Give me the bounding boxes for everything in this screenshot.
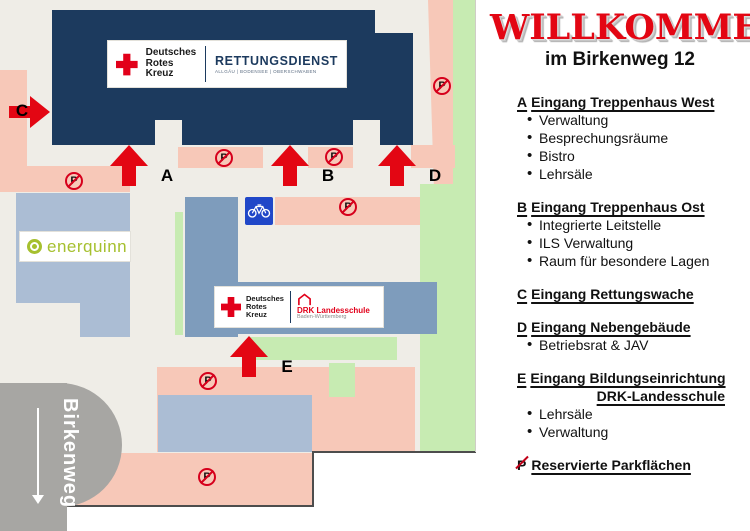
street-direction-arrow bbox=[37, 408, 39, 496]
lawn-strip-left-of-school bbox=[175, 212, 183, 335]
street-birkenweg bbox=[0, 383, 67, 531]
no-parking-sign: P bbox=[199, 372, 217, 390]
page-subtitle: im Birkenweg 12 bbox=[490, 48, 750, 72]
map-border-bottom-left bbox=[66, 505, 314, 507]
entrance-arrow-b: B bbox=[271, 145, 309, 186]
building-enerquinn-annex bbox=[80, 303, 130, 337]
legend-section-parking: PReservierte Parkflächen bbox=[517, 456, 729, 474]
legend-section-e: EEingang Bildungseinrichtung DRK-Landess… bbox=[517, 369, 729, 441]
building-main-right-wing bbox=[375, 33, 413, 120]
bicycle-sign bbox=[245, 197, 273, 225]
up-arrow-icon bbox=[110, 145, 148, 186]
no-parking-sign: P bbox=[198, 468, 216, 486]
no-parking-sign: P bbox=[215, 149, 233, 167]
legend-item: Lehrsäle bbox=[517, 165, 729, 183]
lawn-small-bottom bbox=[329, 363, 355, 397]
rettungsdienst-title: RETTUNGSDIENST bbox=[215, 54, 338, 68]
up-arrow-icon bbox=[271, 145, 309, 186]
building-main-base-mid bbox=[182, 120, 353, 145]
legend-item: Integrierte Leitstelle bbox=[517, 216, 729, 234]
drk-wordmark: Deutsches Rotes Kreuz bbox=[146, 48, 197, 80]
up-arrow-icon bbox=[230, 336, 268, 377]
site-map: enerquinn Deutsches Rotes Kreuz DRK Land… bbox=[0, 0, 478, 531]
street-name-label: Birkenweg bbox=[58, 398, 81, 530]
legend-item: Lehrsäle bbox=[517, 405, 729, 423]
house-icon bbox=[297, 293, 312, 306]
landesschule-mark: DRK Landesschule Baden-Württemberg bbox=[297, 293, 370, 321]
legend-panel: WILLKOMMEN im Birkenweg 12 AEingang Trep… bbox=[490, 0, 750, 531]
red-cross-icon bbox=[221, 297, 241, 317]
map-border-right bbox=[475, 0, 476, 452]
parking-strip-d-road bbox=[411, 145, 455, 168]
logo-divider bbox=[290, 291, 291, 323]
no-parking-sign: P bbox=[325, 148, 343, 166]
map-border-bottom-right bbox=[312, 451, 476, 453]
legend-section-d: DEingang Nebengebäude Betriebsrat & JAV bbox=[517, 318, 729, 354]
legend-sections: AEingang Treppenhaus West Verwaltung Bes… bbox=[517, 93, 729, 474]
legend-item: Besprechungsräume bbox=[517, 129, 729, 147]
rettungsdienst-mark: RETTUNGSDIENST ALLGÄU | BODENSEE | OBERS… bbox=[215, 54, 338, 74]
lawn-right-top bbox=[453, 0, 476, 184]
no-parking-sign: P bbox=[433, 77, 451, 95]
legend-section-b: BEingang Treppenhaus Ost Integrierte Lei… bbox=[517, 198, 729, 270]
entrance-arrow-c: C bbox=[9, 95, 51, 129]
landesschule-subtitle: Baden-Württemberg bbox=[297, 315, 370, 321]
legend-item: Betriebsrat & JAV bbox=[517, 336, 729, 354]
building-main-base-left bbox=[52, 120, 155, 145]
building-bottom bbox=[158, 395, 312, 452]
drk-wordmark: Deutsches Rotes Kreuz bbox=[246, 295, 284, 319]
legend-item: Bistro bbox=[517, 147, 729, 165]
no-parking-sign: P bbox=[339, 198, 357, 216]
no-parking-sign: P bbox=[65, 172, 83, 190]
enerquinn-logo: enerquinn bbox=[20, 232, 130, 261]
legend-section-c: CEingang Rettungswache bbox=[517, 285, 729, 303]
up-arrow-icon bbox=[378, 145, 416, 186]
bicycle-icon bbox=[247, 203, 271, 219]
logo-divider bbox=[205, 46, 206, 82]
map-border-step bbox=[312, 451, 314, 507]
welcome-sign: enerquinn Deutsches Rotes Kreuz DRK Land… bbox=[0, 0, 750, 531]
red-cross-icon bbox=[116, 51, 138, 78]
enerquinn-icon bbox=[27, 239, 42, 254]
entrance-arrow-e: E bbox=[230, 336, 268, 377]
legend-item: ILS Verwaltung bbox=[517, 234, 729, 252]
building-main-base-right bbox=[380, 120, 413, 145]
landesschule-logo: Deutsches Rotes Kreuz DRK Landesschule B… bbox=[215, 287, 383, 327]
no-parking-icon: P bbox=[517, 456, 526, 474]
enerquinn-logo-text: enerquinn bbox=[47, 237, 127, 257]
legend-item: Verwaltung bbox=[517, 423, 729, 441]
entrance-arrow-d: D bbox=[378, 145, 416, 186]
page-title: WILLKOMMEN bbox=[490, 8, 750, 48]
rettungsdienst-subtitle: ALLGÄU | BODENSEE | OBERSCHWABEN bbox=[215, 69, 338, 74]
street-direction-arrowhead bbox=[32, 495, 44, 504]
rettungsdienst-logo: Deutsches Rotes Kreuz RETTUNGSDIENST ALL… bbox=[108, 41, 346, 87]
legend-section-a: AEingang Treppenhaus West Verwaltung Bes… bbox=[517, 93, 729, 183]
legend-item: Verwaltung bbox=[517, 111, 729, 129]
legend-item: Raum für besondere Lagen bbox=[517, 252, 729, 270]
entrance-arrow-a: A bbox=[110, 145, 148, 186]
